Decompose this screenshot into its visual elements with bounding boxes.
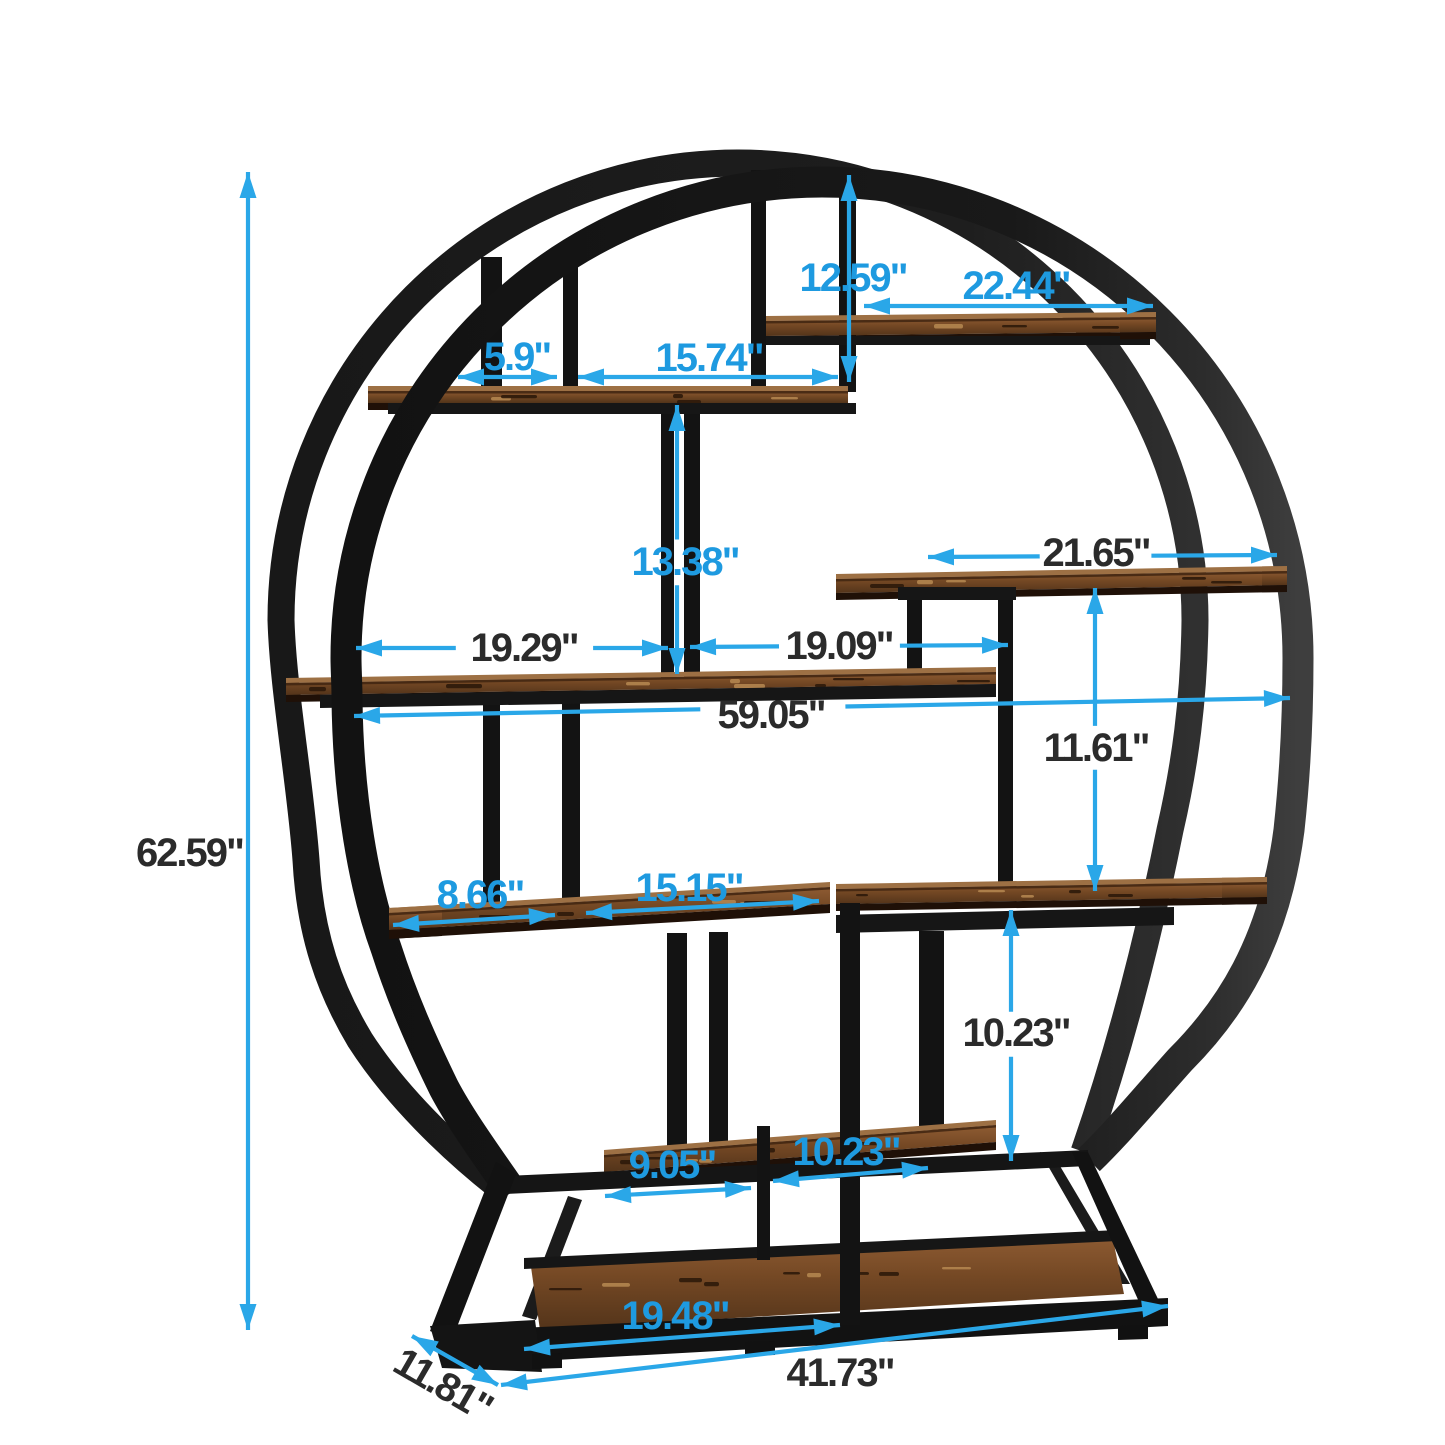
svg-text:19.29": 19.29" <box>470 626 577 670</box>
svg-text:22.44": 22.44" <box>962 264 1069 308</box>
svg-text:21.65": 21.65" <box>1042 531 1149 575</box>
svg-text:8.66": 8.66" <box>437 873 524 917</box>
svg-text:11.61": 11.61" <box>1044 726 1149 770</box>
svg-text:9.05": 9.05" <box>629 1143 716 1187</box>
svg-text:15.74": 15.74" <box>655 336 762 380</box>
svg-text:12.59": 12.59" <box>799 256 906 300</box>
svg-text:10.23": 10.23" <box>792 1130 899 1174</box>
svg-text:15.15": 15.15" <box>635 866 742 910</box>
svg-text:10.23": 10.23" <box>962 1011 1069 1055</box>
svg-text:59.05": 59.05" <box>717 693 824 737</box>
svg-text:19.09": 19.09" <box>785 624 892 668</box>
svg-text:41.73": 41.73" <box>786 1351 893 1395</box>
svg-text:5.9": 5.9" <box>484 335 551 379</box>
svg-text:13.38": 13.38" <box>631 540 738 584</box>
svg-text:19.48": 19.48" <box>621 1294 728 1338</box>
svg-text:62.59": 62.59" <box>136 831 243 875</box>
